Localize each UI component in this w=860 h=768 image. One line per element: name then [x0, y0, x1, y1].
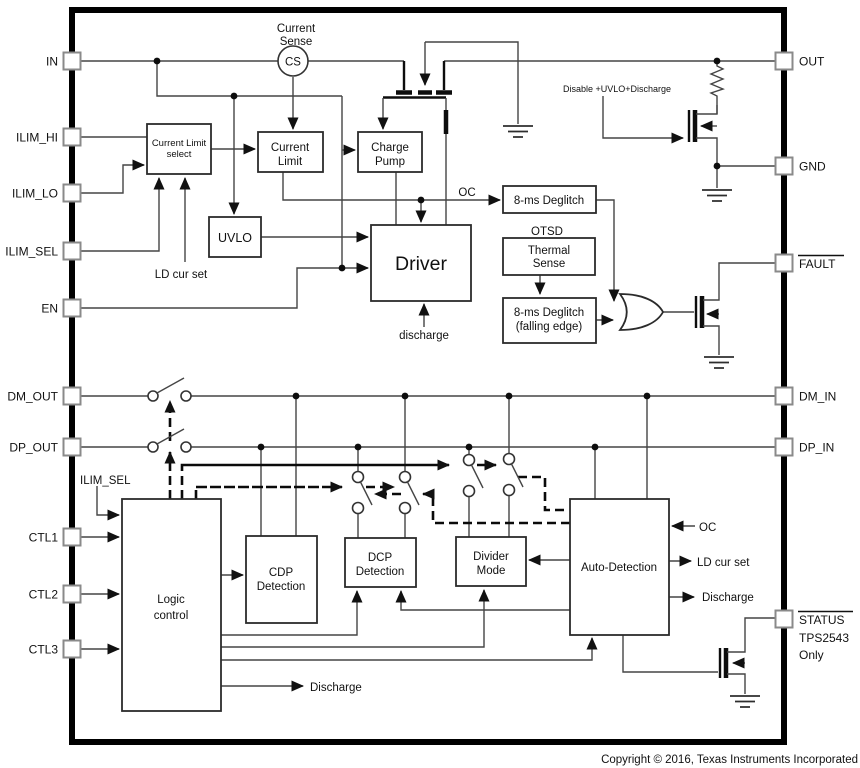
svg-text:Detection: Detection	[356, 566, 405, 578]
block-thermal-sense: Thermal Sense	[503, 238, 595, 275]
svg-text:Driver: Driver	[395, 253, 448, 275]
pin-out: OUT	[776, 53, 826, 70]
svg-text:CDP: CDP	[269, 567, 294, 579]
pin-ctl1: CTL1	[29, 529, 81, 546]
svg-text:select: select	[167, 149, 192, 160]
pin-gnd: GND	[776, 158, 827, 175]
svg-text:IN: IN	[46, 55, 58, 69]
copyright-notice: Copyright © 2016, Texas Instruments Inco…	[601, 754, 858, 766]
diagram-canvas: CS Current Limit select Current Limit Ch…	[0, 0, 860, 768]
current-sense-label-line1: Current	[277, 23, 316, 35]
svg-text:DM_IN: DM_IN	[799, 390, 836, 404]
svg-text:DCP: DCP	[368, 552, 393, 564]
svg-text:Current: Current	[271, 142, 310, 154]
svg-text:Logic: Logic	[157, 594, 185, 606]
svg-text:Thermal: Thermal	[528, 245, 570, 257]
block-deglitch-falling: 8-ms Deglitch (falling edge)	[503, 298, 596, 343]
svg-text:Detection: Detection	[257, 581, 306, 593]
block-dcp-detection: DCP Detection	[345, 538, 416, 587]
svg-text:ILIM_SEL: ILIM_SEL	[5, 245, 58, 259]
cs-label: CS	[285, 57, 301, 69]
status-device-note: TPS2543	[799, 631, 849, 645]
dm-line-switch	[148, 378, 191, 401]
current-sense-label-line2: Sense	[280, 36, 313, 48]
ld-cur-set-label: LD cur set	[155, 269, 208, 281]
pin-dm-in: DM_IN	[776, 388, 837, 405]
svg-text:GND: GND	[799, 160, 826, 174]
svg-text:UVLO: UVLO	[218, 231, 252, 245]
otsd-label: OTSD	[531, 226, 563, 238]
svg-text:Charge: Charge	[371, 142, 409, 154]
pins-right: OUT GND FAULT DM_IN DP_IN STATUS TPS2543…	[776, 53, 854, 663]
block-charge-pump: Charge Pump	[358, 132, 422, 172]
svg-text:CTL1: CTL1	[29, 531, 59, 545]
svg-text:DM_OUT: DM_OUT	[7, 390, 58, 404]
functional-block-diagram: CS Current Limit select Current Limit Ch…	[0, 0, 860, 768]
svg-text:Pump: Pump	[375, 156, 405, 168]
svg-text:Mode: Mode	[477, 565, 506, 577]
status-only-note: Only	[799, 648, 824, 662]
svg-text:FAULT: FAULT	[799, 257, 836, 271]
oc-signal-label: OC	[458, 187, 475, 199]
pin-in: IN	[46, 53, 81, 70]
svg-text:ILIM_HI: ILIM_HI	[16, 131, 58, 145]
pin-ctl3: CTL3	[29, 641, 81, 658]
block-logic-control: Logic control	[122, 499, 221, 711]
svg-text:ILIM_LO: ILIM_LO	[12, 187, 58, 201]
svg-text:8-ms Deglitch: 8-ms Deglitch	[514, 195, 584, 207]
divider-switch-dm	[504, 454, 524, 496]
or-gate	[620, 294, 663, 330]
svg-text:OUT: OUT	[799, 55, 825, 69]
pin-fault: FAULT	[776, 255, 845, 272]
svg-text:Sense: Sense	[533, 258, 566, 270]
discharge-driver-label: discharge	[399, 330, 449, 342]
dcp-switch-dp	[353, 472, 373, 514]
disable-uvlo-discharge-label: Disable +UVLO+Discharge	[563, 84, 671, 94]
svg-text:control: control	[154, 610, 189, 622]
dcp-switch-dm	[400, 472, 420, 514]
svg-text:Current Limit: Current Limit	[152, 138, 207, 149]
block-deglitch-oc: 8-ms Deglitch	[503, 186, 596, 213]
pin-en: EN	[41, 300, 80, 317]
pin-dp-out: DP_OUT	[9, 439, 80, 456]
discharge-logic-label: Discharge	[310, 682, 362, 694]
oc-auto-label: OC	[699, 522, 716, 534]
svg-text:Auto-Detection: Auto-Detection	[581, 562, 657, 574]
svg-text:CTL2: CTL2	[29, 588, 59, 602]
block-divider-mode: Divider Mode	[456, 537, 526, 586]
ilim-sel-logic-label: ILIM_SEL	[80, 475, 131, 487]
pin-dp-in: DP_IN	[776, 439, 835, 456]
block-auto-detection: Auto-Detection	[570, 499, 669, 635]
block-current-limit: Current Limit	[258, 132, 323, 172]
svg-text:CTL3: CTL3	[29, 643, 59, 657]
ld-cur-set-auto-label: LD cur set	[697, 557, 750, 569]
svg-text:Limit: Limit	[278, 156, 303, 168]
discharge-auto-label: Discharge	[702, 592, 754, 604]
svg-text:8-ms Deglitch: 8-ms Deglitch	[514, 307, 584, 319]
svg-text:STATUS: STATUS	[799, 613, 845, 627]
pin-ilim-sel: ILIM_SEL	[5, 243, 80, 260]
block-current-limit-select: Current Limit select	[147, 124, 211, 174]
pin-status: STATUS TPS2543 Only	[776, 611, 854, 663]
svg-text:DP_IN: DP_IN	[799, 441, 834, 455]
svg-text:(falling edge): (falling edge)	[516, 321, 583, 333]
pin-ctl2: CTL2	[29, 586, 81, 603]
block-uvlo: UVLO	[209, 217, 261, 257]
divider-switch-dp	[464, 455, 484, 497]
block-driver: Driver	[371, 225, 471, 301]
svg-text:DP_OUT: DP_OUT	[9, 441, 58, 455]
svg-text:EN: EN	[41, 302, 58, 316]
pin-dm-out: DM_OUT	[7, 388, 80, 405]
pin-ilim-hi: ILIM_HI	[16, 129, 81, 146]
svg-text:Divider: Divider	[473, 551, 509, 563]
pin-ilim-lo: ILIM_LO	[12, 185, 81, 202]
block-cdp-detection: CDP Detection	[246, 536, 317, 623]
